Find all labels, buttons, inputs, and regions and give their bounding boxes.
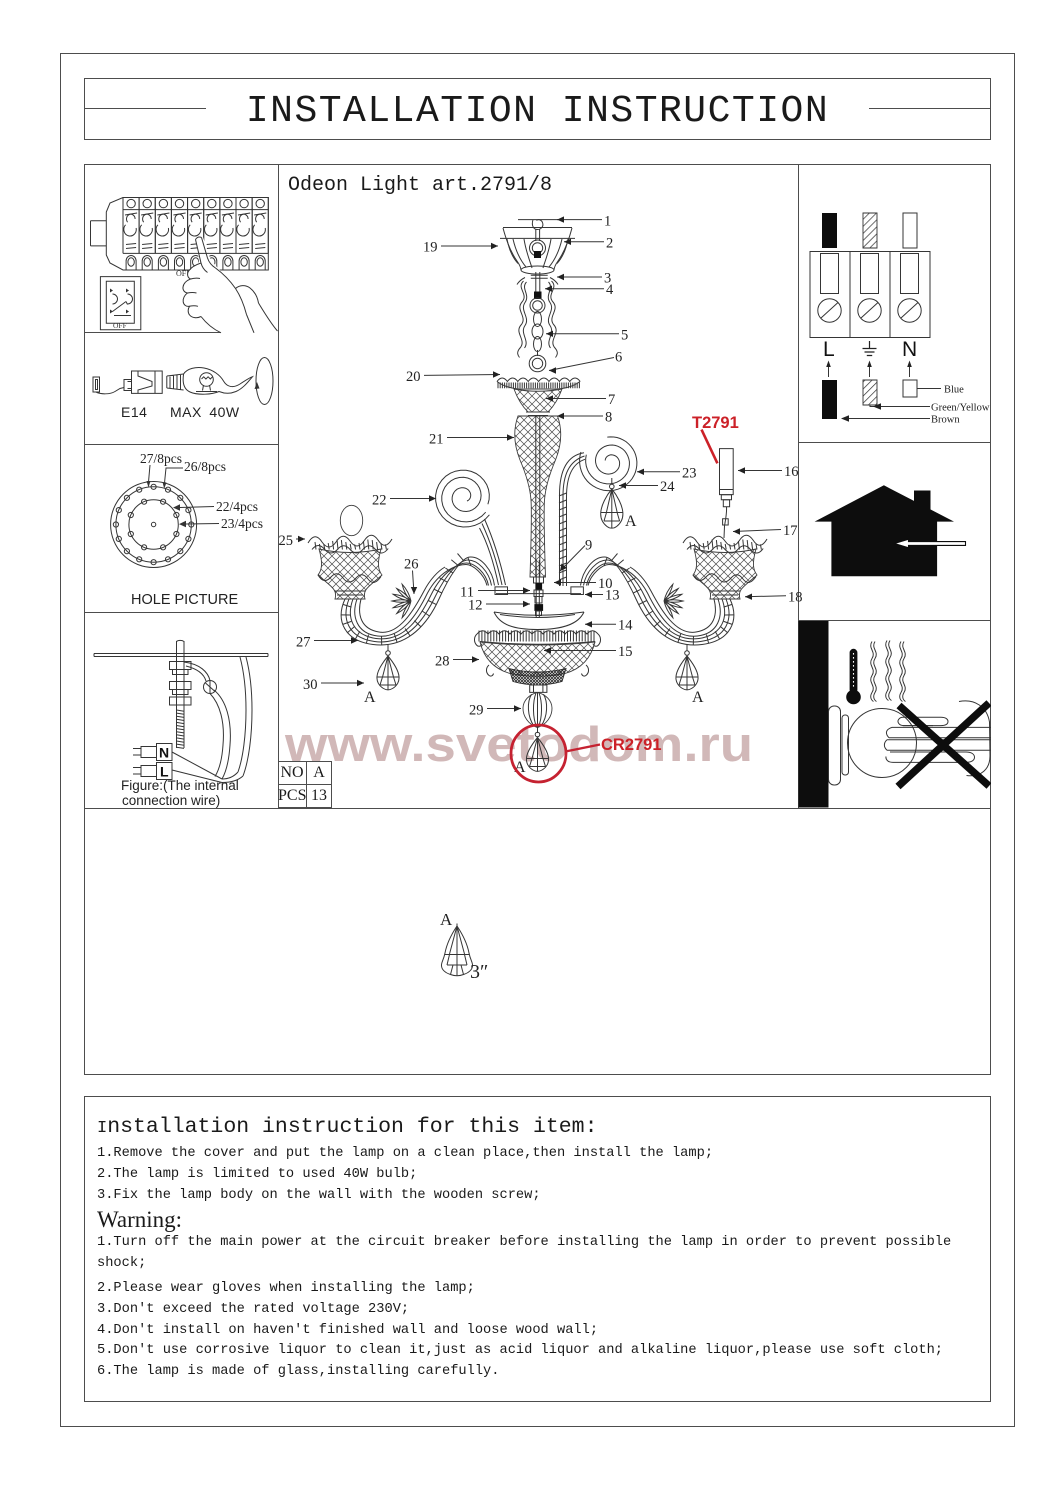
svg-text:18: 18: [788, 590, 803, 606]
svg-text:28: 28: [435, 654, 450, 670]
svg-text:2: 2: [606, 235, 613, 251]
svg-text:23/4pcs: 23/4pcs: [221, 516, 263, 531]
svg-text:26/8pcs: 26/8pcs: [184, 459, 226, 474]
svg-text:5: 5: [621, 328, 628, 344]
svg-text:MAX 40W: MAX 40W: [170, 404, 240, 420]
svg-text:L: L: [823, 338, 835, 361]
svg-text:4: 4: [606, 282, 614, 298]
svg-text:connection wire): connection wire): [122, 793, 220, 808]
svg-text:A: A: [440, 910, 453, 929]
svg-text:19: 19: [423, 240, 438, 256]
svg-text:CR2791: CR2791: [601, 736, 662, 754]
svg-text:9: 9: [585, 538, 592, 554]
svg-text:7: 7: [608, 392, 615, 408]
svg-text:22: 22: [372, 493, 387, 509]
svg-text:23: 23: [682, 466, 697, 482]
svg-text:20: 20: [406, 369, 421, 385]
svg-text:12: 12: [468, 598, 483, 614]
svg-text:T2791: T2791: [692, 414, 739, 432]
svg-text:13: 13: [605, 588, 620, 604]
svg-text:A: A: [692, 689, 704, 706]
svg-text:24: 24: [660, 479, 675, 495]
svg-text:N: N: [902, 338, 917, 361]
svg-text:N: N: [159, 745, 169, 761]
svg-text:A: A: [625, 513, 637, 530]
svg-text:26: 26: [404, 557, 419, 573]
svg-text:Brown: Brown: [931, 415, 960, 426]
svg-text:25: 25: [279, 533, 294, 549]
svg-text:15: 15: [618, 644, 633, 660]
svg-text:27: 27: [296, 635, 311, 651]
svg-text:21: 21: [429, 432, 444, 448]
svg-text:1: 1: [604, 214, 611, 230]
svg-text:22/4pcs: 22/4pcs: [216, 499, 258, 514]
svg-text:29: 29: [469, 703, 484, 719]
svg-text:Blue: Blue: [944, 385, 964, 396]
svg-text:27/8pcs: 27/8pcs: [140, 451, 182, 466]
svg-text:16: 16: [784, 464, 799, 480]
svg-text:3″: 3″: [470, 961, 488, 983]
svg-text:14: 14: [618, 618, 633, 634]
svg-text:30: 30: [303, 677, 318, 693]
svg-text:Green/Yellow: Green/Yellow: [931, 403, 990, 414]
svg-text:8: 8: [605, 410, 612, 426]
svg-text:OFF: OFF: [113, 321, 127, 330]
svg-text:A: A: [364, 689, 376, 706]
svg-text:HOLE PICTURE: HOLE PICTURE: [131, 592, 238, 608]
svg-text:Figure:(The internal: Figure:(The internal: [121, 778, 239, 793]
svg-text:E14: E14: [121, 404, 147, 420]
svg-text:6: 6: [615, 350, 622, 366]
svg-text:17: 17: [783, 523, 798, 539]
